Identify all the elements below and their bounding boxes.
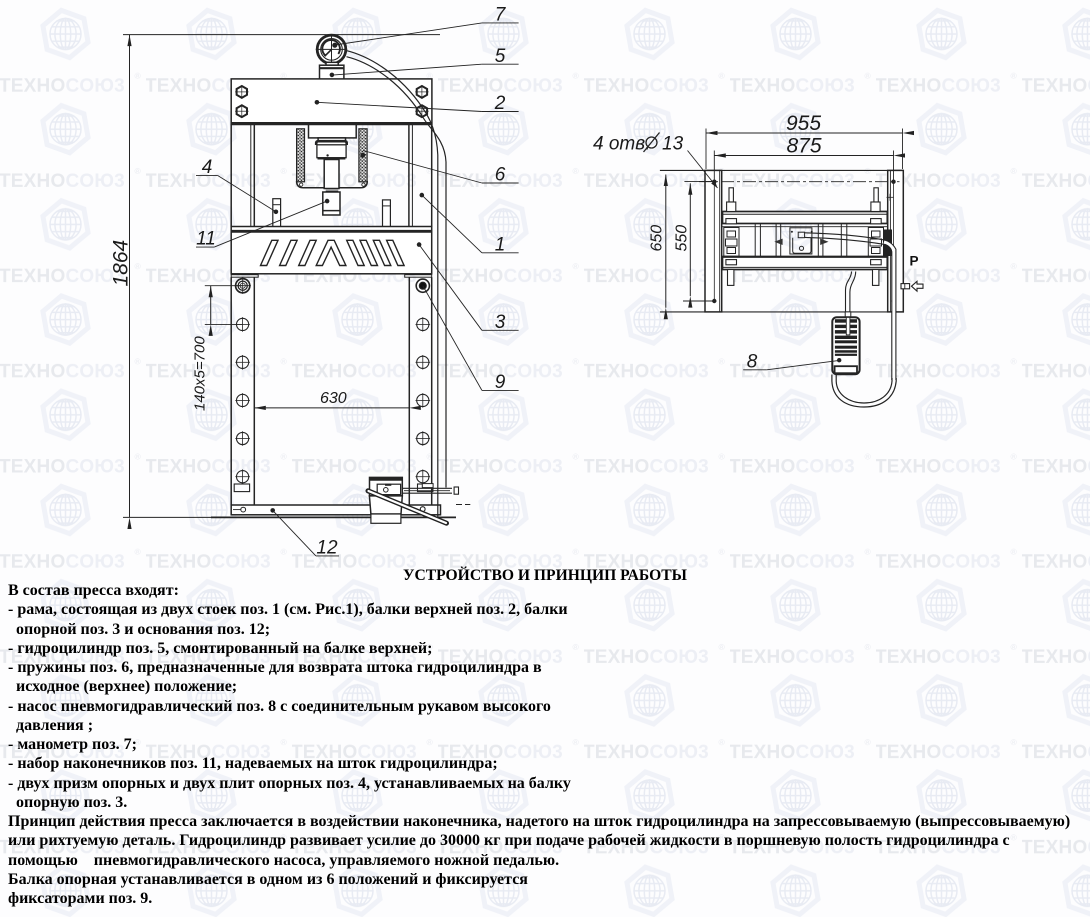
svg-text:13: 13 [662, 134, 684, 155]
svg-text:1864: 1864 [110, 240, 133, 287]
svg-text:1: 1 [495, 234, 506, 255]
svg-text:955: 955 [786, 112, 821, 135]
svg-text:9: 9 [495, 372, 506, 393]
svg-text:650: 650 [649, 225, 666, 252]
svg-text:140x5=700: 140x5=700 [192, 336, 209, 411]
svg-text:4 отв.: 4 отв. [593, 134, 650, 155]
svg-text:875: 875 [787, 134, 822, 157]
svg-text:5: 5 [495, 46, 506, 67]
svg-text:6: 6 [495, 165, 506, 186]
svg-text:550: 550 [674, 225, 691, 252]
svg-text:4: 4 [202, 157, 213, 178]
svg-text:12: 12 [316, 538, 338, 559]
svg-text:2: 2 [494, 93, 506, 114]
svg-text:8: 8 [747, 352, 758, 373]
svg-text:11: 11 [196, 229, 216, 250]
svg-text:7: 7 [495, 5, 507, 26]
svg-text:P: P [910, 253, 919, 268]
svg-text:3: 3 [495, 312, 506, 333]
svg-text:630: 630 [320, 390, 347, 407]
